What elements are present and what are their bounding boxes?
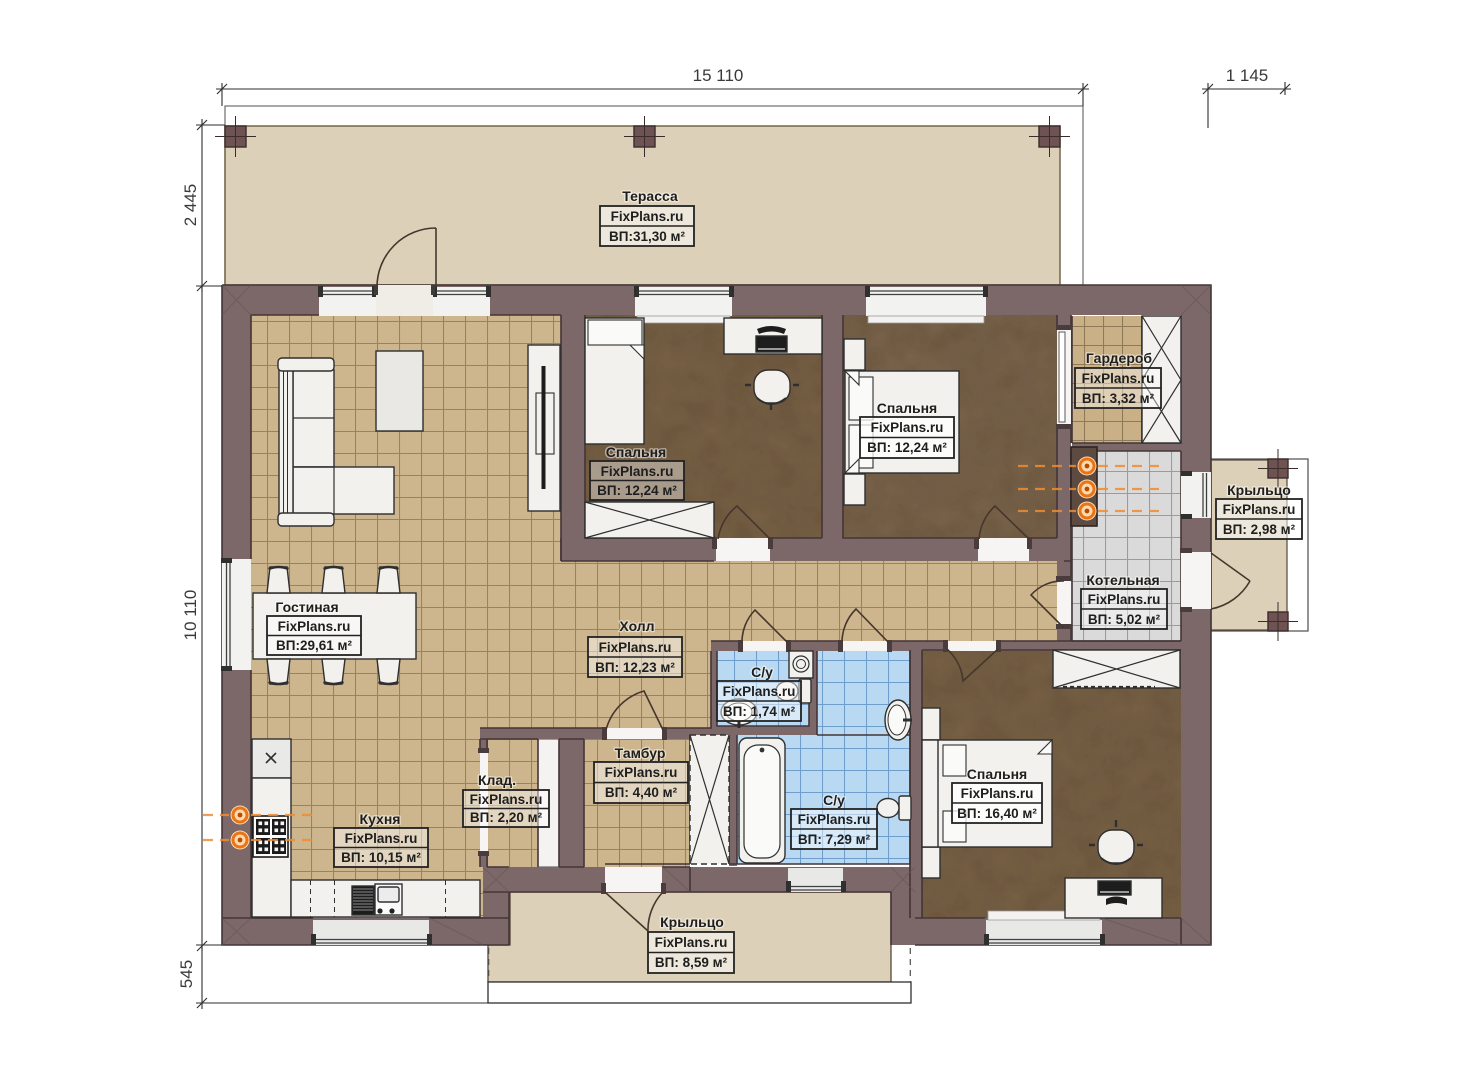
svg-text:FixPlans.ru: FixPlans.ru (470, 792, 543, 807)
svg-text:FixPlans.ru: FixPlans.ru (599, 640, 672, 655)
svg-text:ВП: 10,15 м²: ВП: 10,15 м² (341, 850, 421, 865)
svg-text:Терасса: Терасса (622, 188, 678, 204)
svg-text:FixPlans.ru: FixPlans.ru (871, 420, 944, 435)
svg-text:FixPlans.ru: FixPlans.ru (1223, 502, 1296, 517)
svg-text:ВП: 12,23 м²: ВП: 12,23 м² (595, 660, 675, 675)
svg-text:FixPlans.ru: FixPlans.ru (278, 619, 351, 634)
svg-text:ВП:31,30 м²: ВП:31,30 м² (609, 229, 685, 244)
svg-text:ВП: 1,74 м²: ВП: 1,74 м² (723, 704, 796, 719)
svg-text:FixPlans.ru: FixPlans.ru (611, 209, 684, 224)
svg-text:FixPlans.ru: FixPlans.ru (723, 684, 796, 699)
svg-text:Спальня: Спальня (877, 400, 937, 416)
svg-text:FixPlans.ru: FixPlans.ru (605, 765, 678, 780)
svg-text:Кухня: Кухня (360, 811, 401, 827)
svg-text:1 145: 1 145 (1226, 66, 1269, 85)
svg-text:ВП: 2,20 м²: ВП: 2,20 м² (470, 810, 543, 825)
svg-text:Котельная: Котельная (1086, 572, 1159, 588)
svg-text:Холл: Холл (619, 618, 654, 634)
svg-text:ВП: 16,40 м²: ВП: 16,40 м² (957, 806, 1037, 821)
svg-text:Крыльцо: Крыльцо (660, 914, 724, 930)
svg-text:ВП: 2,98 м²: ВП: 2,98 м² (1223, 522, 1296, 537)
svg-text:FixPlans.ru: FixPlans.ru (601, 464, 674, 479)
svg-text:ВП: 4,40 м²: ВП: 4,40 м² (605, 785, 678, 800)
svg-text:Тамбур: Тамбур (615, 745, 666, 761)
svg-text:ВП:29,61 м²: ВП:29,61 м² (276, 638, 352, 653)
svg-text:ВП: 12,24 м²: ВП: 12,24 м² (867, 440, 947, 455)
svg-text:FixPlans.ru: FixPlans.ru (345, 831, 418, 846)
svg-text:FixPlans.ru: FixPlans.ru (1088, 592, 1161, 607)
svg-text:ВП: 7,29 м²: ВП: 7,29 м² (798, 832, 871, 847)
svg-text:2 445: 2 445 (181, 184, 200, 227)
svg-text:С/у: С/у (823, 792, 845, 808)
svg-text:FixPlans.ru: FixPlans.ru (961, 786, 1034, 801)
svg-text:Спальня: Спальня (606, 444, 666, 460)
svg-text:Крыльцо: Крыльцо (1227, 482, 1291, 498)
svg-text:FixPlans.ru: FixPlans.ru (798, 812, 871, 827)
svg-text:ВП: 5,02 м²: ВП: 5,02 м² (1088, 612, 1161, 627)
svg-text:10 110: 10 110 (181, 590, 200, 641)
svg-text:ВП: 8,59 м²: ВП: 8,59 м² (655, 955, 728, 970)
svg-text:Спальня: Спальня (967, 766, 1027, 782)
svg-text:FixPlans.ru: FixPlans.ru (655, 935, 728, 950)
svg-text:Клад.: Клад. (478, 772, 516, 788)
svg-text:Гардероб: Гардероб (1086, 350, 1153, 366)
svg-text:Гостиная: Гостиная (275, 599, 338, 615)
svg-text:ВП: 12,24 м²: ВП: 12,24 м² (597, 483, 677, 498)
svg-text:FixPlans.ru: FixPlans.ru (1082, 371, 1155, 386)
svg-text:15 110: 15 110 (693, 66, 744, 85)
svg-text:С/у: С/у (751, 664, 773, 680)
svg-text:545: 545 (177, 960, 196, 988)
svg-text:ВП: 3,32 м²: ВП: 3,32 м² (1082, 391, 1155, 406)
